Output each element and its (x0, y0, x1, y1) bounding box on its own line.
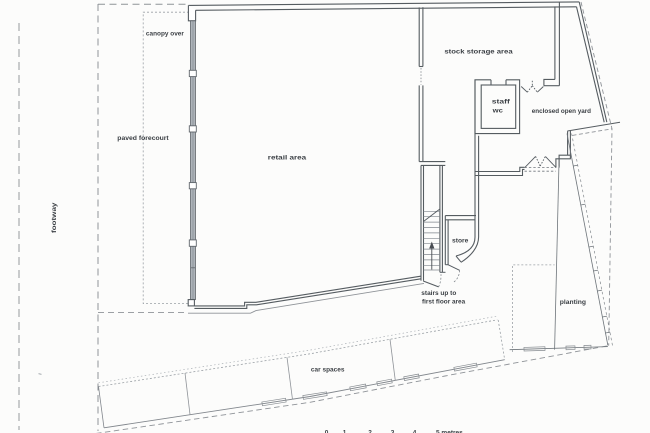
svg-text:store: store (452, 238, 469, 245)
svg-text:wc: wc (492, 107, 504, 114)
svg-text:enclosed open yard: enclosed open yard (532, 108, 591, 115)
svg-text:car spaces: car spaces (311, 367, 345, 374)
svg-text:planting: planting (560, 299, 586, 306)
svg-text:5 metres: 5 metres (436, 430, 463, 433)
svg-text:paved forecourt: paved forecourt (117, 135, 169, 142)
svg-text:stock storage area: stock storage area (444, 49, 513, 56)
svg-text:4: 4 (413, 430, 417, 433)
svg-text:staff: staff (492, 99, 511, 106)
svg-text:1: 1 (343, 430, 347, 433)
svg-text:0: 0 (325, 430, 329, 433)
svg-text:canopy over: canopy over (146, 31, 185, 38)
svg-text:retail area: retail area (268, 154, 307, 161)
svg-text:first floor area: first floor area (422, 299, 466, 306)
svg-text:3: 3 (391, 430, 395, 433)
svg-text:2: 2 (368, 430, 372, 433)
svg-text:footway: footway (51, 202, 58, 233)
svg-text:stairs up to: stairs up to (421, 290, 456, 297)
